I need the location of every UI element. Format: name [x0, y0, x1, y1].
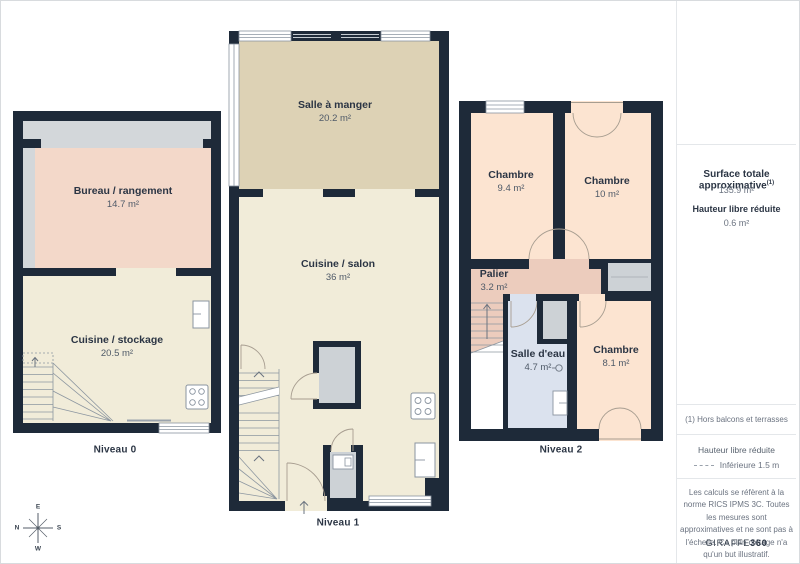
divider: [677, 434, 796, 435]
divider: [677, 404, 796, 405]
window: [486, 101, 524, 113]
room-area: 8.1 m²: [593, 358, 639, 370]
brand-bold: 360: [750, 538, 767, 548]
surface-value: 135.9 m²: [677, 185, 796, 195]
room-area: 14.7 m²: [74, 199, 173, 211]
opening: [116, 268, 176, 276]
room-label-cuisine-salon: Cuisine / salon 36 m²: [301, 258, 375, 284]
shower: [537, 301, 567, 344]
window: [369, 496, 431, 506]
room-name: Cuisine / salon: [301, 258, 375, 270]
divider: [677, 478, 796, 479]
room-name: Bureau / rangement: [74, 185, 173, 197]
window: [159, 423, 209, 433]
opening: [529, 259, 589, 269]
appliance-icon: [415, 443, 435, 477]
compass-top: E: [36, 504, 40, 511]
room-area: 3.2 m²: [480, 282, 509, 294]
footnote: (1) Hors balcons et terrasses: [677, 415, 796, 424]
compass-icon: [23, 513, 53, 543]
room-name: Chambre: [488, 169, 534, 181]
room-label-chambre-2: Chambre 10 m²: [584, 175, 630, 201]
legend-label: Inférieure 1.5 m: [720, 460, 780, 470]
closet: [608, 263, 651, 291]
room-name: Palier: [480, 268, 509, 280]
room-name: Salle à manger: [298, 99, 372, 111]
legend-title: Hauteur libre réduite: [677, 445, 796, 455]
floor-label-niveau-2: Niveau 2: [540, 445, 583, 456]
legend-row: Inférieure 1.5 m: [677, 460, 796, 470]
room-label-salle-a-manger: Salle à manger 20.2 m²: [298, 99, 372, 125]
room-name: Cuisine / stockage: [71, 334, 163, 346]
window: [381, 31, 430, 41]
room-area: 10 m²: [584, 189, 630, 201]
opening: [355, 189, 415, 197]
disclaimer: Les calculs se réfèrent à la norme RICS …: [680, 487, 793, 561]
room-area: 20.2 m²: [298, 113, 372, 125]
room-name: Chambre: [584, 175, 630, 187]
reduced-height-title: Hauteur libre réduite: [677, 204, 796, 214]
divider: [677, 144, 796, 145]
stairs-void: [471, 341, 503, 429]
compass-bottom: W: [35, 546, 41, 553]
reduced-height-value: 0.6 m²: [677, 218, 796, 228]
compass-right: S: [57, 525, 61, 532]
stove-icon: [411, 393, 435, 419]
room-label-cuisine-stockage: Cuisine / stockage 20.5 m²: [71, 334, 163, 360]
compass-left: N: [15, 525, 20, 532]
room-name: Salle d'eau: [511, 348, 565, 360]
dashed-line-swatch: [694, 465, 714, 467]
window: [239, 31, 291, 41]
floor-label-niveau-0: Niveau 0: [94, 445, 137, 456]
room-area: 20.5 m²: [71, 348, 163, 360]
floor-plan-page: Bureau / rangement 14.7 m² Cuisine / sto…: [0, 0, 800, 564]
plan-niveau-0: [13, 111, 221, 433]
room-label-salle-deau: Salle d'eau 4.7 m²: [511, 348, 565, 374]
room-label-chambre-1: Chambre 9.4 m²: [488, 169, 534, 195]
reduced-height-zone: [23, 148, 35, 268]
stove-icon: [186, 385, 208, 409]
brand-regular: GIRAFFE: [705, 538, 750, 548]
room-area: 9.4 m²: [488, 183, 534, 195]
room-label-bureau: Bureau / rangement 14.7 m²: [74, 185, 173, 211]
giraffe360-logo: GIRAFFE360: [677, 538, 796, 548]
opening: [263, 189, 323, 197]
sink-icon: [333, 455, 353, 469]
room-area: 4.7 m²: [511, 362, 565, 374]
room-label-chambre-3: Palier Chambre 8.1 m²: [593, 344, 639, 370]
sink-icon: [553, 391, 567, 415]
reduced-height-zone: [23, 121, 211, 148]
window: [229, 44, 239, 186]
room-area: 36 m²: [301, 272, 375, 284]
room-name: Chambre: [593, 344, 639, 356]
appliance-icon: [193, 301, 209, 328]
room-label-palier: Palier 3.2 m²: [480, 268, 509, 294]
floor-label-niveau-1: Niveau 1: [317, 518, 360, 529]
